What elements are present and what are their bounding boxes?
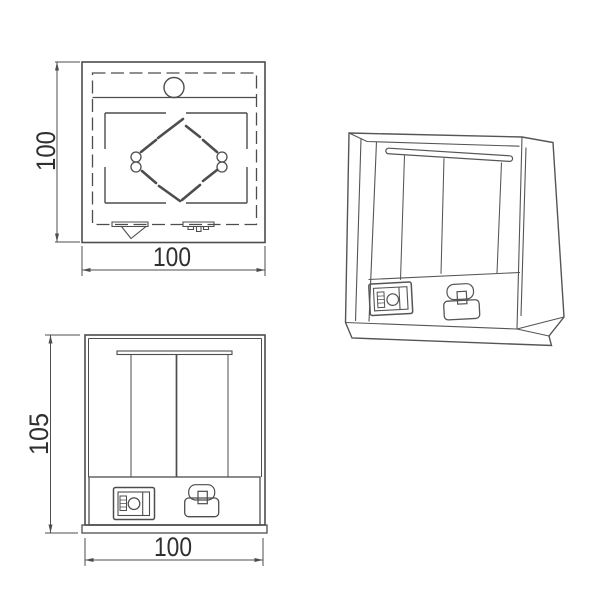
rocker-switch-perspective <box>369 282 413 316</box>
dim-arrow <box>49 525 53 534</box>
mount-pin <box>217 152 227 162</box>
drawing-canvas: 100 100 <box>0 0 600 600</box>
dim-arrow <box>49 335 53 344</box>
dim-label-front-width: 100 <box>154 532 192 562</box>
lamp-mount-diamond <box>131 119 227 201</box>
dim-front-width: 100 <box>85 532 263 566</box>
dim-arrow <box>257 268 266 272</box>
top-view-hidden-edge-dashed-rect <box>93 73 257 225</box>
cord-grip-body <box>185 498 219 517</box>
switch-rocker-ribs <box>377 296 384 303</box>
switch-divider <box>399 287 400 309</box>
mount-pin <box>131 152 141 162</box>
front-view-outer-frame <box>85 335 265 525</box>
switch-indicator <box>128 498 140 510</box>
top-view: 100 100 <box>31 62 265 276</box>
dim-label-top-width: 100 <box>153 242 191 272</box>
dim-arrow <box>55 234 59 243</box>
switch-indicator <box>387 294 399 306</box>
cord-grip-perspective <box>443 283 480 320</box>
cord-grip-body <box>443 300 479 321</box>
panel-top-edge <box>369 273 521 280</box>
rocker-switch-front <box>114 488 155 520</box>
lamp-housing-rect <box>105 113 247 203</box>
box-silhouette <box>346 133 565 346</box>
dim-label-front-height: 105 <box>24 413 54 455</box>
cord-grip-tab <box>457 291 467 304</box>
control-panel <box>89 477 260 525</box>
glass-edges-perspective <box>401 156 502 280</box>
dim-arrow <box>82 268 91 272</box>
left-clip-flap <box>122 227 147 239</box>
perspective-view <box>346 133 565 346</box>
glass-shelf-bar <box>117 351 232 355</box>
dim-top-width: 100 <box>82 242 265 276</box>
cord-grip-front <box>185 485 219 517</box>
front-view: 105 100 <box>24 335 267 566</box>
dim-arrow <box>255 558 264 562</box>
dim-label-top-height: 100 <box>31 131 61 171</box>
technical-drawing-svg: 100 100 <box>0 0 600 600</box>
cable-entry-hole <box>164 78 184 98</box>
front-view-inner-frame <box>89 339 262 478</box>
dim-top-height: 100 <box>31 62 80 242</box>
top-view-outer-square <box>82 62 265 243</box>
dim-arrow <box>85 558 94 562</box>
switch-rocker-ribs <box>120 500 127 507</box>
right-clip-teeth <box>188 227 209 232</box>
diamond-struts <box>141 119 217 201</box>
mount-pin <box>217 162 227 172</box>
dim-arrow <box>55 62 59 71</box>
dim-front-height: 105 <box>24 335 80 533</box>
mount-pin <box>131 162 141 172</box>
glass-edges <box>131 355 228 478</box>
